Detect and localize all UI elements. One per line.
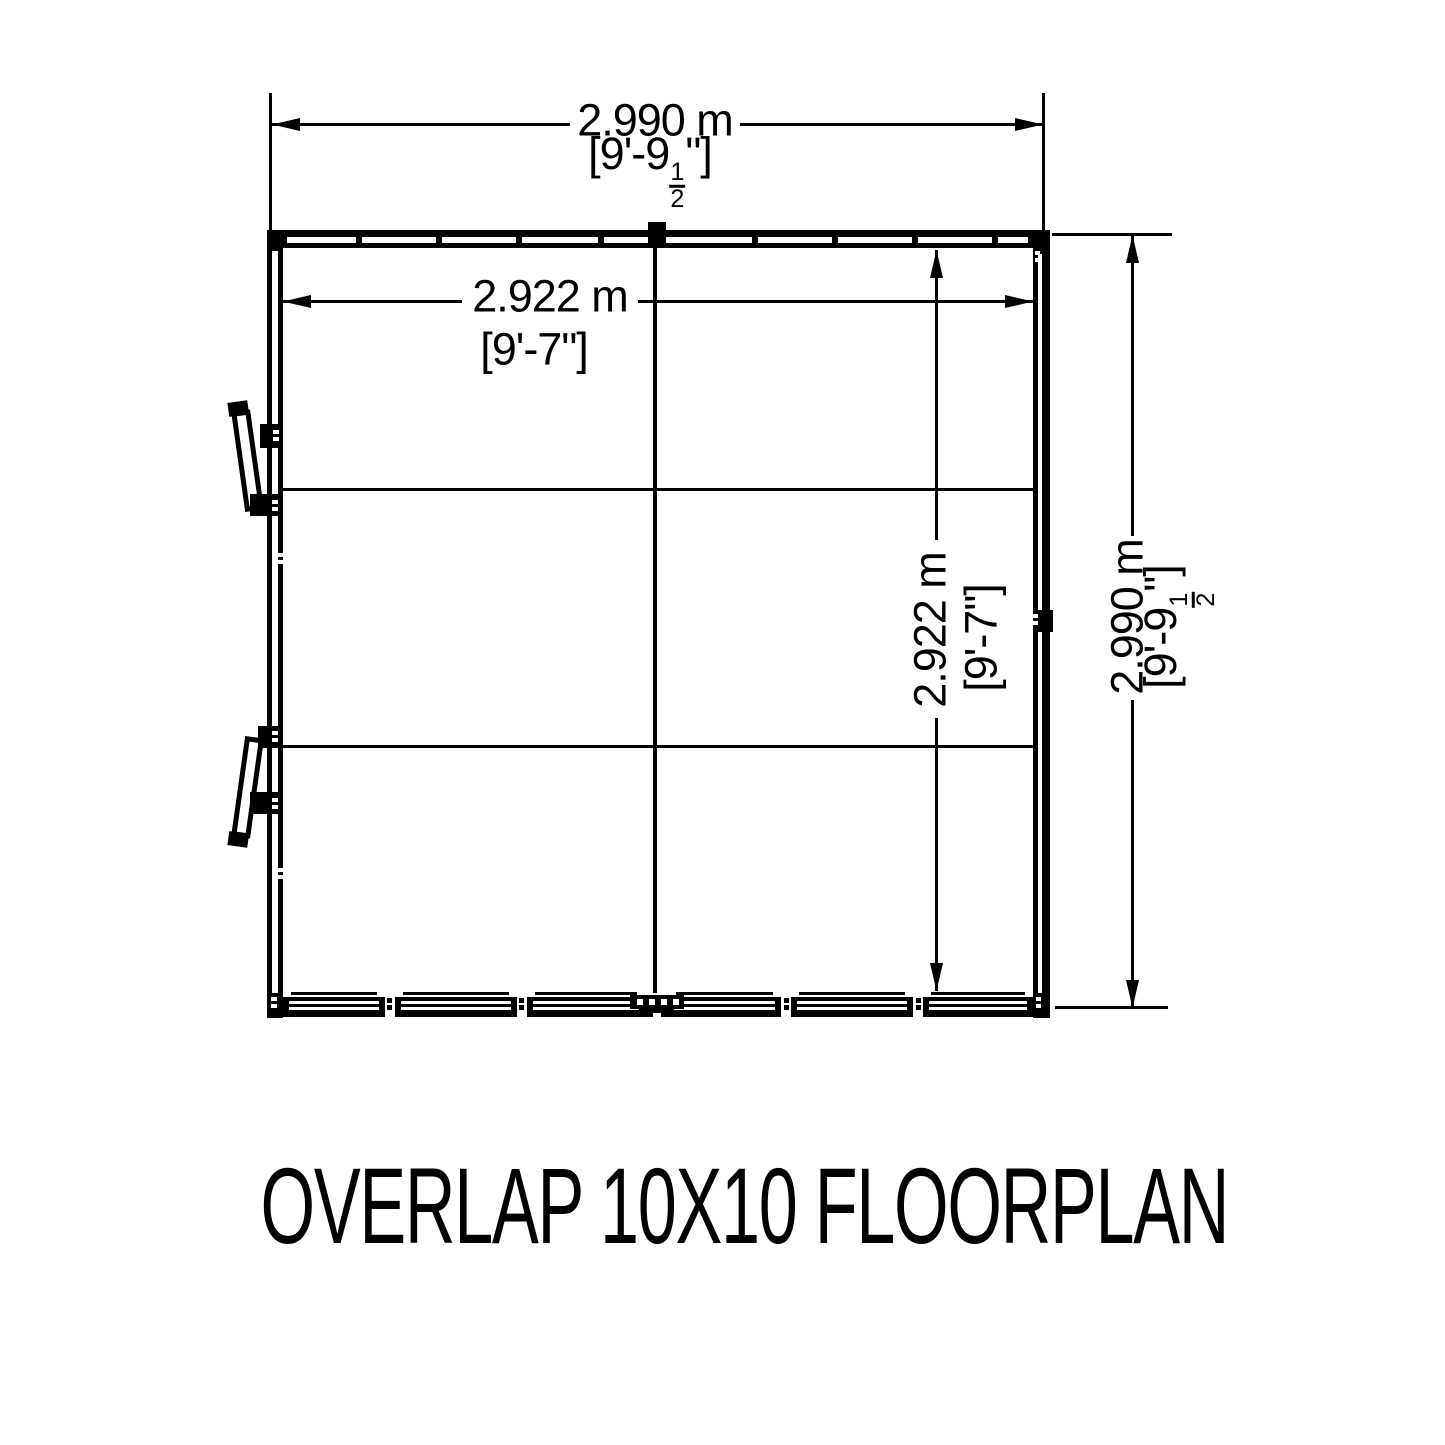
dim-width-exterior-imperial: [9'-912"] xyxy=(588,131,712,211)
dim-arrow xyxy=(1126,235,1139,263)
dim-arrow xyxy=(930,250,943,278)
dim-arrow xyxy=(930,963,943,991)
cladding-panel xyxy=(923,992,1033,1017)
wall-joint-dash xyxy=(271,1004,277,1008)
bottom-wall xyxy=(283,992,1033,1017)
wall-joint-dash xyxy=(272,500,278,504)
imperial-suffix: "] xyxy=(685,128,711,179)
fraction-numerator: 1 xyxy=(1167,593,1191,607)
wall-joint-dash xyxy=(272,738,278,742)
wall-line-inner xyxy=(1033,246,1038,1018)
groove-divider xyxy=(436,236,442,244)
drawing-title: OVERLAP 10X10 FLOORPLAN xyxy=(261,1156,1229,1256)
window-upper xyxy=(227,400,283,516)
ridge-center-tab xyxy=(648,222,666,231)
dim-depth-exterior-imperial: [9'-912"] xyxy=(1138,565,1218,689)
dim-width-interior-metric: 2.922 m xyxy=(472,274,628,319)
dim-line xyxy=(638,300,1033,303)
dim-line xyxy=(1131,700,1134,1008)
groove-divider xyxy=(752,236,758,244)
window-hinge-block xyxy=(250,792,282,814)
extension-line xyxy=(1055,1006,1168,1009)
corner-block xyxy=(1033,993,1050,1018)
extension-line xyxy=(1042,93,1045,230)
floor-joint-horizontal-lower xyxy=(283,745,1033,748)
wall-joint-dash xyxy=(1035,251,1040,255)
dim-arrow xyxy=(272,118,300,131)
dim-line xyxy=(740,123,1043,126)
floorplan-page: 2.990 m [9'-912"] 2.922 m [9'-7"] 2.922 … xyxy=(0,0,1445,1445)
dim-arrow xyxy=(283,295,311,308)
wall-joint-dash xyxy=(272,805,278,809)
groove-divider xyxy=(912,236,918,244)
dim-depth-interior-metric: 2.922 m xyxy=(908,552,953,708)
dim-depth-interior-imperial: [9'-7"] xyxy=(959,584,1004,692)
title-row: OVERLAP 10X10 FLOORPLAN xyxy=(0,1156,1445,1256)
wall-line-outer xyxy=(267,246,272,1018)
window-lower xyxy=(227,726,283,848)
extension-line xyxy=(1052,233,1172,236)
wall-joint-dash xyxy=(278,560,283,564)
fraction: 12 xyxy=(1167,592,1218,608)
imperial-prefix: [9'-9 xyxy=(588,128,669,179)
wall-joint-dash xyxy=(1033,621,1038,625)
dim-line xyxy=(1131,235,1134,536)
wall-joint-dash xyxy=(273,437,279,441)
dim-line xyxy=(272,123,570,126)
dim-arrow xyxy=(1015,118,1043,131)
imperial-suffix: "] xyxy=(1135,565,1186,591)
wall-joint-dash xyxy=(272,258,278,262)
floor-joint-horizontal-upper xyxy=(283,488,1033,491)
dim-line xyxy=(935,250,938,540)
dim-width-interior-imperial: [9'-7"] xyxy=(480,327,588,372)
groove-divider xyxy=(992,236,998,244)
wall-joint-dash xyxy=(278,875,283,879)
groove-divider xyxy=(832,236,838,244)
fraction: 12 xyxy=(669,160,685,211)
wall-joint-dash xyxy=(272,251,278,255)
window-hinge-block xyxy=(258,726,283,748)
wall-joint-dash xyxy=(271,997,277,1001)
dim-arrow xyxy=(1005,295,1033,308)
wall-joint-dash xyxy=(272,798,278,802)
dim-arrow xyxy=(1126,980,1139,1008)
wall-joint-dash xyxy=(278,553,283,557)
top-wall xyxy=(267,222,1050,248)
wall-joint-dash xyxy=(1036,1004,1041,1008)
groove-divider xyxy=(648,236,666,244)
wall-joint-dash xyxy=(1036,997,1041,1001)
left-wall xyxy=(267,230,283,1018)
groove-divider xyxy=(516,236,522,244)
cladding-panel xyxy=(527,992,645,1017)
wall-joint-dash xyxy=(1033,614,1038,618)
window-hinge-block xyxy=(250,494,282,516)
wall-joint-dash xyxy=(272,731,278,735)
right-wall xyxy=(1033,230,1053,1018)
cladding-panel xyxy=(283,992,385,1017)
dim-width-interior-graphics xyxy=(283,295,1033,308)
fraction-numerator: 1 xyxy=(670,160,684,184)
groove-divider xyxy=(356,236,362,244)
imperial-prefix: [9'-9 xyxy=(1135,608,1186,689)
dim-line xyxy=(935,718,938,991)
floor-joint-vertical-center xyxy=(653,248,657,993)
cladding-panel xyxy=(791,992,913,1017)
groove-divider xyxy=(598,236,604,244)
fraction-denominator: 2 xyxy=(1191,592,1218,608)
wall-joint-dash xyxy=(272,507,278,511)
wall-line-inner xyxy=(278,246,283,1018)
corner-block xyxy=(267,230,283,254)
wall-joint-dash xyxy=(278,868,283,872)
cladding-panel xyxy=(668,992,781,1017)
cladding-panel xyxy=(395,992,517,1017)
extension-line xyxy=(269,93,272,230)
fraction-denominator: 2 xyxy=(669,184,685,211)
corner-block xyxy=(1033,230,1050,254)
wall-stud-block xyxy=(1038,610,1053,632)
wall-joint-dash xyxy=(273,430,279,434)
wall-joint-dash xyxy=(1035,258,1040,262)
window-hinge-block xyxy=(260,424,283,448)
window-upper-flap xyxy=(227,400,262,510)
